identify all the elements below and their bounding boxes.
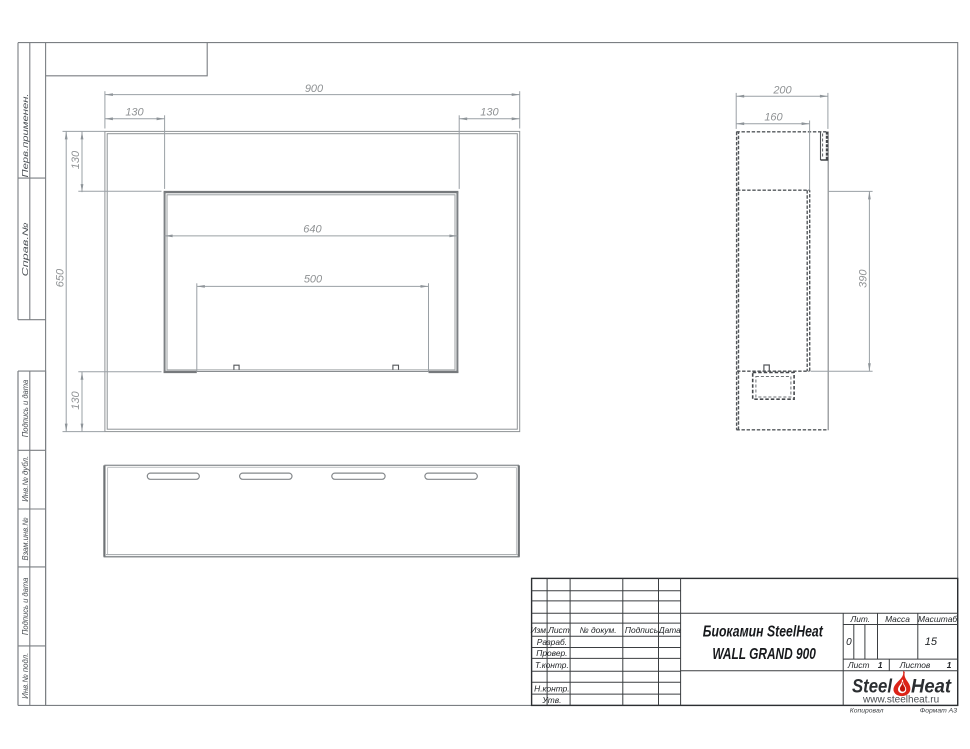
svg-text:Лист: Лист [847, 660, 870, 670]
svg-text:Подпись и дата: Подпись и дата [21, 577, 30, 635]
svg-text:Взам.инв.№: Взам.инв.№ [21, 517, 30, 560]
svg-text:500: 500 [304, 274, 323, 286]
svg-text:Провер.: Провер. [536, 648, 567, 658]
svg-text:Справ.№: Справ.№ [21, 222, 30, 277]
svg-text:130: 130 [125, 106, 144, 118]
svg-text:390: 390 [857, 269, 869, 288]
svg-text:Дата: Дата [658, 625, 681, 635]
svg-text:900: 900 [305, 83, 324, 95]
svg-text:Инв.№ подл.: Инв.№ подл. [21, 653, 30, 699]
svg-text:Подпись и дата: Подпись и дата [21, 379, 30, 437]
svg-text:Масштаб: Масштаб [918, 614, 957, 624]
svg-text:200: 200 [772, 84, 792, 96]
svg-text:Биокамин SteelHeat: Биокамин SteelHeat [703, 623, 824, 640]
svg-text:Т.контр.: Т.контр. [535, 660, 569, 670]
svg-text:1: 1 [878, 660, 883, 670]
svg-text:650: 650 [55, 268, 67, 287]
svg-text:Копировал: Копировал [850, 708, 884, 715]
svg-text:Разраб.: Разраб. [537, 637, 567, 647]
svg-text:Инв.№ дубл.: Инв.№ дубл. [21, 456, 30, 502]
svg-text:160: 160 [764, 111, 783, 123]
svg-text:Лист: Лист [547, 625, 570, 635]
svg-text:Перв.применен.: Перв.применен. [21, 94, 30, 178]
svg-text:Масса: Масса [885, 614, 910, 624]
svg-text:WALL GRAND 900: WALL GRAND 900 [712, 646, 816, 663]
svg-text:Н.контр.: Н.контр. [534, 683, 569, 693]
svg-text:Листов: Листов [899, 660, 931, 670]
svg-text:Подпись: Подпись [625, 625, 658, 635]
svg-text:№ докум.: № докум. [580, 625, 617, 635]
svg-text:www.steelheat.ru: www.steelheat.ru [862, 695, 939, 706]
svg-text:Формат А3: Формат А3 [920, 708, 957, 715]
svg-text:130: 130 [70, 391, 82, 410]
svg-text:Изм.: Изм. [530, 625, 548, 635]
svg-text:1: 1 [947, 660, 952, 670]
svg-text:Утв.: Утв. [541, 695, 561, 705]
svg-text:640: 640 [303, 223, 322, 235]
svg-text:130: 130 [70, 150, 82, 169]
svg-text:0: 0 [846, 637, 852, 648]
svg-text:15: 15 [925, 636, 938, 648]
svg-text:Лит.: Лит. [849, 614, 870, 624]
svg-text:130: 130 [480, 106, 499, 118]
